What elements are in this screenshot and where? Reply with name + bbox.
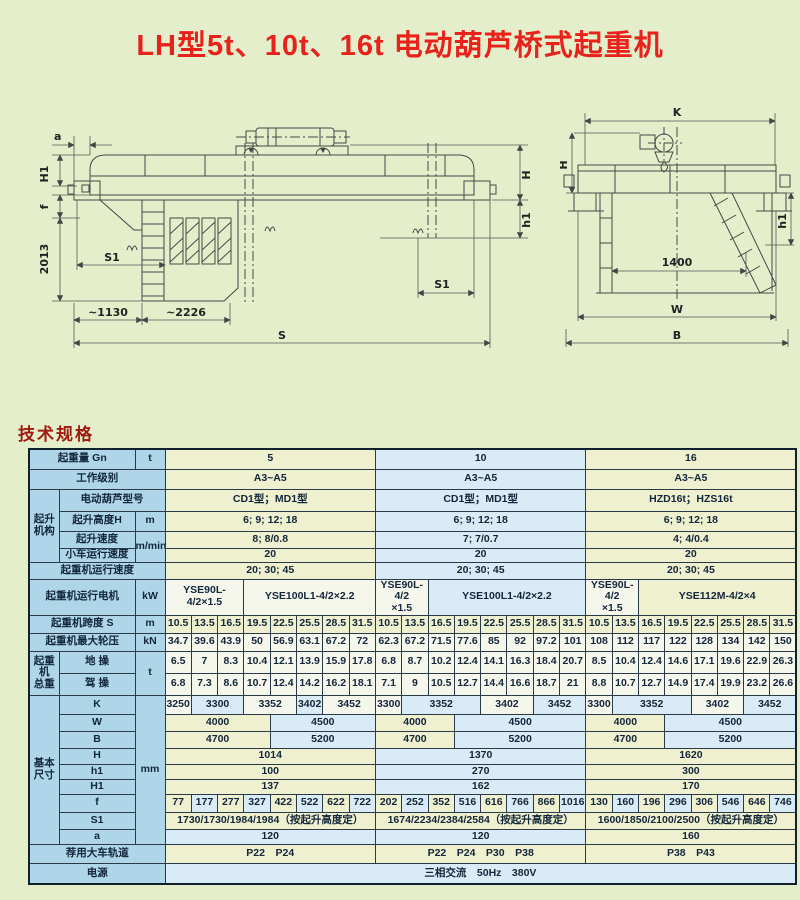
group-label: 基本 尺寸 — [29, 695, 59, 844]
data-cell: 202 — [375, 794, 401, 812]
data-cell: 8.3 — [218, 651, 244, 673]
table-row-8: 起重机跨度 Sm10.513.516.519.522.525.528.531.5… — [29, 615, 796, 633]
data-cell: 112 — [612, 633, 638, 651]
data-cell: A3~A5 — [375, 469, 585, 489]
data-cell: 22.9 — [744, 651, 770, 673]
data-cell: 722 — [349, 794, 375, 812]
data-cell: 3300 — [191, 695, 244, 714]
data-cell: 10.4 — [244, 651, 270, 673]
data-cell: 97.2 — [533, 633, 559, 651]
machining-symbols — [127, 227, 423, 250]
data-cell: 22.5 — [270, 615, 296, 633]
data-cell: 10.4 — [612, 651, 638, 673]
data-cell: 296 — [665, 794, 691, 812]
data-cell: P22 P24 — [165, 844, 375, 863]
data-cell: 5200 — [665, 731, 797, 748]
data-cell: 21 — [560, 673, 586, 695]
row-label: 电源 — [29, 863, 165, 884]
data-cell: 4700 — [586, 731, 665, 748]
unit-cell: t — [135, 651, 165, 695]
row-label: f — [59, 794, 135, 812]
table-row-21: 荐用大车轨道P22 P24P22 P24 P30 P38P38 P43 — [29, 844, 796, 863]
data-cell: 19.5 — [665, 615, 691, 633]
data-cell: 3250 — [165, 695, 191, 714]
data-cell: 6.5 — [165, 651, 191, 673]
data-cell: 67.2 — [323, 633, 349, 651]
data-cell: 16.5 — [639, 615, 665, 633]
data-cell: 101 — [560, 633, 586, 651]
data-cell: 20; 30; 45 — [586, 562, 796, 579]
data-cell: 134 — [717, 633, 743, 651]
data-cell: 10.7 — [244, 673, 270, 695]
dim-label-H: H — [520, 170, 533, 179]
section-heading: 技术规格 — [18, 420, 94, 445]
data-cell: 12.7 — [454, 673, 480, 695]
data-cell: 7 — [191, 651, 217, 673]
data-cell: 746 — [770, 794, 796, 812]
data-cell: 6.8 — [375, 651, 401, 673]
dim-label-K: K — [673, 106, 682, 119]
table-row-7: 起重机运行电机kWYSE90L-4/2×1.5YSE100L1-4/2×2.2Y… — [29, 579, 796, 615]
table-row-10: 起重 机 总重地 操t6.578.310.412.113.915.917.86.… — [29, 651, 796, 673]
data-cell: 13.5 — [612, 615, 638, 633]
data-cell: 1674/2234/2384/2584（按起升高度定） — [375, 812, 585, 829]
dim-label-1400: 1400 — [662, 256, 693, 269]
data-cell: 17.4 — [691, 673, 717, 695]
dim-label-S1-left: S1 — [104, 251, 120, 264]
data-cell: 616 — [481, 794, 507, 812]
data-cell: 10.5 — [165, 615, 191, 633]
data-cell: 10 — [375, 449, 585, 469]
data-cell: 16 — [586, 449, 796, 469]
end-view-drawing: K H h1 1400 W B — [560, 103, 795, 373]
row-label: 电动葫芦型号 — [59, 489, 165, 511]
data-cell: 13.9 — [296, 651, 322, 673]
data-cell: 128 — [691, 633, 717, 651]
data-cell: 77 — [165, 794, 191, 812]
table-row-1: 工作级别A3~A5A3~A5A3~A5 — [29, 469, 796, 489]
dim-label-a: a — [54, 130, 61, 143]
data-cell: 19.6 — [717, 651, 743, 673]
data-cell: 62.3 — [375, 633, 401, 651]
data-cell: 56.9 — [270, 633, 296, 651]
data-cell: 306 — [691, 794, 717, 812]
data-cell: 19.5 — [244, 615, 270, 633]
table-row-3: 起升高度Hm6; 9; 12; 186; 9; 12; 186; 9; 12; … — [29, 511, 796, 531]
unit-cell: mm — [135, 695, 165, 844]
data-cell: CD1型；MD1型 — [375, 489, 585, 511]
data-cell: 8.7 — [402, 651, 428, 673]
data-cell: 270 — [375, 764, 585, 779]
data-cell: 1014 — [165, 748, 375, 764]
data-cell: 170 — [586, 779, 796, 794]
data-cell: 160 — [586, 829, 796, 844]
data-cell: 14.6 — [665, 651, 691, 673]
data-cell: 4500 — [270, 714, 375, 731]
row-label: 起重机跨度 S — [29, 615, 135, 633]
group-label: 起升 机构 — [29, 489, 59, 562]
dim-label-f: f — [38, 204, 51, 209]
row-label: 起升高度H — [59, 511, 135, 531]
data-cell: 20.7 — [560, 651, 586, 673]
data-cell: 4700 — [165, 731, 270, 748]
data-cell: 17.1 — [691, 651, 717, 673]
data-cell: 3402 — [481, 695, 534, 714]
data-cell: HZD16t；HZS16t — [586, 489, 796, 511]
dim-label-H: H — [560, 160, 570, 169]
row-label: a — [59, 829, 135, 844]
data-cell: 10.5 — [375, 615, 401, 633]
data-cell: 14.2 — [296, 673, 322, 695]
front-elevation-drawing: a H1 f 2013 S1 ~1130 ~2226 S H h1 S1 — [30, 98, 555, 410]
data-cell: 108 — [586, 633, 612, 651]
spec-table: 起重量 Gnt51016工作级别A3~A5A3~A5A3~A5起升 机构电动葫芦… — [28, 448, 797, 885]
data-cell: 160 — [612, 794, 638, 812]
data-cell: 117 — [639, 633, 665, 651]
data-cell: 34.7 — [165, 633, 191, 651]
data-cell: 10.5 — [586, 615, 612, 633]
dimension-labels: a H1 f 2013 S1 ~1130 ~2226 S H h1 S1 — [38, 130, 533, 342]
data-cell: 4000 — [375, 714, 454, 731]
row-label: W — [59, 714, 135, 731]
driver-cab — [100, 200, 238, 301]
unit-cell: m — [135, 511, 165, 531]
data-cell: 352 — [428, 794, 454, 812]
cab-windows — [170, 218, 231, 264]
data-cell: 22.5 — [691, 615, 717, 633]
data-cell: 7.1 — [375, 673, 401, 695]
data-cell: 71.5 — [428, 633, 454, 651]
data-cell: YSE90L-4/2×1.5 — [165, 579, 244, 615]
table-row-12: 基本 尺寸Kmm32503300335234023452330033523402… — [29, 695, 796, 714]
data-cell: 25.5 — [717, 615, 743, 633]
data-cell: 20 — [375, 548, 585, 562]
data-cell: 28.5 — [533, 615, 559, 633]
dimension-labels: K H h1 1400 W B — [560, 106, 789, 342]
data-cell: 三相交流 50Hz 380V — [165, 863, 796, 884]
data-cell: 130 — [586, 794, 612, 812]
data-cell: 10.7 — [612, 673, 638, 695]
data-cell: 26.3 — [770, 651, 796, 673]
data-cell: 13.5 — [191, 615, 217, 633]
girder — [68, 143, 496, 303]
data-cell: 20 — [165, 548, 375, 562]
data-cell: 646 — [744, 794, 770, 812]
data-cell: 5 — [165, 449, 375, 469]
data-cell: 14.1 — [481, 651, 507, 673]
data-cell: 19.5 — [454, 615, 480, 633]
data-cell: 3352 — [402, 695, 481, 714]
unit-cell: kW — [135, 579, 165, 615]
data-cell: 3452 — [533, 695, 586, 714]
data-cell: 3300 — [586, 695, 612, 714]
data-cell: 15.9 — [323, 651, 349, 673]
data-cell: YSE112M-4/2×4 — [639, 579, 797, 615]
data-cell: 7.3 — [191, 673, 217, 695]
data-cell: 12.1 — [270, 651, 296, 673]
data-cell: 18.1 — [349, 673, 375, 695]
data-cell: 5200 — [270, 731, 375, 748]
data-cell: 4500 — [454, 714, 586, 731]
data-cell: 14.4 — [481, 673, 507, 695]
data-cell: A3~A5 — [586, 469, 796, 489]
data-cell: 9 — [402, 673, 428, 695]
data-cell: 19.9 — [717, 673, 743, 695]
data-cell: 1620 — [586, 748, 796, 764]
row-label: H1 — [59, 779, 135, 794]
data-cell: 6; 9; 12; 18 — [586, 511, 796, 531]
data-cell: 5200 — [454, 731, 586, 748]
data-cell: 8; 8/0.8 — [165, 531, 375, 548]
table-row-2: 起升 机构电动葫芦型号CD1型；MD1型CD1型；MD1型HZD16t；HZS1… — [29, 489, 796, 511]
data-cell: 72 — [349, 633, 375, 651]
data-cell: 1370 — [375, 748, 585, 764]
data-cell: 6; 9; 12; 18 — [165, 511, 375, 531]
data-cell: 12.4 — [639, 651, 665, 673]
data-cell: 10.5 — [428, 673, 454, 695]
data-cell: 3352 — [244, 695, 297, 714]
data-cell: 196 — [639, 794, 665, 812]
data-cell: 28.5 — [323, 615, 349, 633]
table-row-0: 起重量 Gnt51016 — [29, 449, 796, 469]
data-cell: CD1型；MD1型 — [165, 489, 375, 511]
data-cell: 20 — [586, 548, 796, 562]
data-cell: 100 — [165, 764, 375, 779]
data-cell: 12.4 — [454, 651, 480, 673]
data-cell: 10.2 — [428, 651, 454, 673]
data-cell: 3452 — [323, 695, 376, 714]
data-cell: 6; 9; 12; 18 — [375, 511, 585, 531]
data-cell: 1016 — [560, 794, 586, 812]
page: LH型5t、10t、16t 电动葫芦桥式起重机 — [0, 0, 800, 900]
data-cell: 8.5 — [586, 651, 612, 673]
data-cell: 17.8 — [349, 651, 375, 673]
row-label: 起重量 Gn — [29, 449, 135, 469]
row-label: H — [59, 748, 135, 764]
unit-cell: t — [135, 449, 165, 469]
data-cell: 12.4 — [270, 673, 296, 695]
row-label: 起重机最大轮压 — [29, 633, 135, 651]
data-cell: YSE90L-4/2 ×1.5 — [586, 579, 639, 615]
data-cell: 1730/1730/1984/1984（按起升高度定） — [165, 812, 375, 829]
data-cell: 13.5 — [402, 615, 428, 633]
data-cell: 277 — [218, 794, 244, 812]
data-cell: 120 — [165, 829, 375, 844]
data-cell: 546 — [717, 794, 743, 812]
table-row-9: 起重机最大轮压kN34.739.643.95056.963.167.27262.… — [29, 633, 796, 651]
data-cell: 92 — [507, 633, 533, 651]
row-label: 工作级别 — [29, 469, 165, 489]
data-cell: 120 — [375, 829, 585, 844]
data-cell: 622 — [323, 794, 349, 812]
dim-label-h1: h1 — [520, 212, 533, 228]
dim-label-B: B — [673, 329, 681, 342]
data-cell: 766 — [507, 794, 533, 812]
data-cell: A3~A5 — [165, 469, 375, 489]
data-cell: 16.2 — [323, 673, 349, 695]
unit-cell: m/min — [135, 531, 165, 562]
dim-label-2013: 2013 — [38, 244, 51, 275]
data-cell: 18.7 — [533, 673, 559, 695]
row-label: 起升速度 — [59, 531, 135, 548]
data-cell: 1600/1850/2100/2500（按起升高度定） — [586, 812, 796, 829]
data-cell: 6.8 — [165, 673, 191, 695]
data-cell: 31.5 — [560, 615, 586, 633]
data-cell: 39.6 — [191, 633, 217, 651]
data-cell: P38 P43 — [586, 844, 796, 863]
data-cell: 3300 — [375, 695, 401, 714]
data-cell: 20; 30; 45 — [165, 562, 375, 579]
data-cell: 67.2 — [402, 633, 428, 651]
data-cell: 16.5 — [218, 615, 244, 633]
data-cell: 522 — [296, 794, 322, 812]
data-cell: 162 — [375, 779, 585, 794]
data-cell: 31.5 — [349, 615, 375, 633]
data-cell: 866 — [533, 794, 559, 812]
row-label: 驾 操 — [59, 673, 135, 695]
dim-label-S: S — [278, 329, 286, 342]
row-label: 荐用大车轨道 — [29, 844, 165, 863]
data-cell: 327 — [244, 794, 270, 812]
data-cell: 22.5 — [481, 615, 507, 633]
data-cell: 43.9 — [218, 633, 244, 651]
dim-label-2226: ~2226 — [166, 306, 206, 319]
data-cell: YSE100L1-4/2×2.2 — [244, 579, 376, 615]
row-label: S1 — [59, 812, 135, 829]
data-cell: P22 P24 P30 P38 — [375, 844, 585, 863]
data-cell: 50 — [244, 633, 270, 651]
dim-label-H1: H1 — [38, 166, 51, 183]
dim-label-W: W — [671, 303, 683, 316]
unit-cell: m — [135, 615, 165, 633]
data-cell: 4000 — [165, 714, 270, 731]
row-label: B — [59, 731, 135, 748]
unit-cell: kN — [135, 633, 165, 651]
dim-label-S1-right: S1 — [434, 278, 450, 291]
data-cell: 422 — [270, 794, 296, 812]
data-cell: 25.5 — [296, 615, 322, 633]
data-cell: 3452 — [744, 695, 797, 714]
data-cell: 77.6 — [454, 633, 480, 651]
data-cell: 3402 — [691, 695, 744, 714]
page-title: LH型5t、10t、16t 电动葫芦桥式起重机 — [0, 22, 800, 64]
data-cell: 85 — [481, 633, 507, 651]
row-label: h1 — [59, 764, 135, 779]
data-cell: 150 — [770, 633, 796, 651]
data-cell: 252 — [402, 794, 428, 812]
data-cell: 4500 — [665, 714, 797, 731]
data-cell: 18.4 — [533, 651, 559, 673]
data-cell: 8.6 — [218, 673, 244, 695]
data-cell: 122 — [665, 633, 691, 651]
data-cell: 3352 — [612, 695, 691, 714]
row-label: 小车运行速度 — [59, 548, 135, 562]
data-cell: 16.3 — [507, 651, 533, 673]
data-cell: 12.7 — [639, 673, 665, 695]
data-cell: 4; 4/0.4 — [586, 531, 796, 548]
group-label: 起重 机 总重 — [29, 651, 59, 695]
row-label: 地 操 — [59, 651, 135, 673]
data-cell: 16.5 — [428, 615, 454, 633]
data-cell: 26.6 — [770, 673, 796, 695]
data-cell: 8.8 — [586, 673, 612, 695]
dim-label-1130: ~1130 — [88, 306, 128, 319]
data-cell: 300 — [586, 764, 796, 779]
data-cell: 4700 — [375, 731, 454, 748]
data-cell: 63.1 — [296, 633, 322, 651]
table-row-4: 起升速度m/min8; 8/0.87; 7/0.74; 4/0.4 — [29, 531, 796, 548]
data-cell: 25.5 — [507, 615, 533, 633]
table-row-22: 电源三相交流 50Hz 380V — [29, 863, 796, 884]
data-cell: YSE100L1-4/2×2.2 — [428, 579, 586, 615]
data-cell: 177 — [191, 794, 217, 812]
data-cell: 23.2 — [744, 673, 770, 695]
data-cell: 142 — [744, 633, 770, 651]
data-cell: 31.5 — [770, 615, 796, 633]
data-cell: 3402 — [296, 695, 322, 714]
row-label: K — [59, 695, 135, 714]
data-cell: 28.5 — [744, 615, 770, 633]
data-cell: 7; 7/0.7 — [375, 531, 585, 548]
data-cell: 16.6 — [507, 673, 533, 695]
table-row-6: 起重机运行速度20; 30; 4520; 30; 4520; 30; 45 — [29, 562, 796, 579]
dim-label-h1: h1 — [776, 213, 789, 229]
data-cell: YSE90L-4/2 ×1.5 — [375, 579, 428, 615]
data-cell: 516 — [454, 794, 480, 812]
row-label: 起重机运行电机 — [29, 579, 135, 615]
row-label: 起重机运行速度 — [29, 562, 165, 579]
data-cell: 14.9 — [665, 673, 691, 695]
data-cell: 4000 — [586, 714, 665, 731]
data-cell: 137 — [165, 779, 375, 794]
data-cell: 20; 30; 45 — [375, 562, 585, 579]
